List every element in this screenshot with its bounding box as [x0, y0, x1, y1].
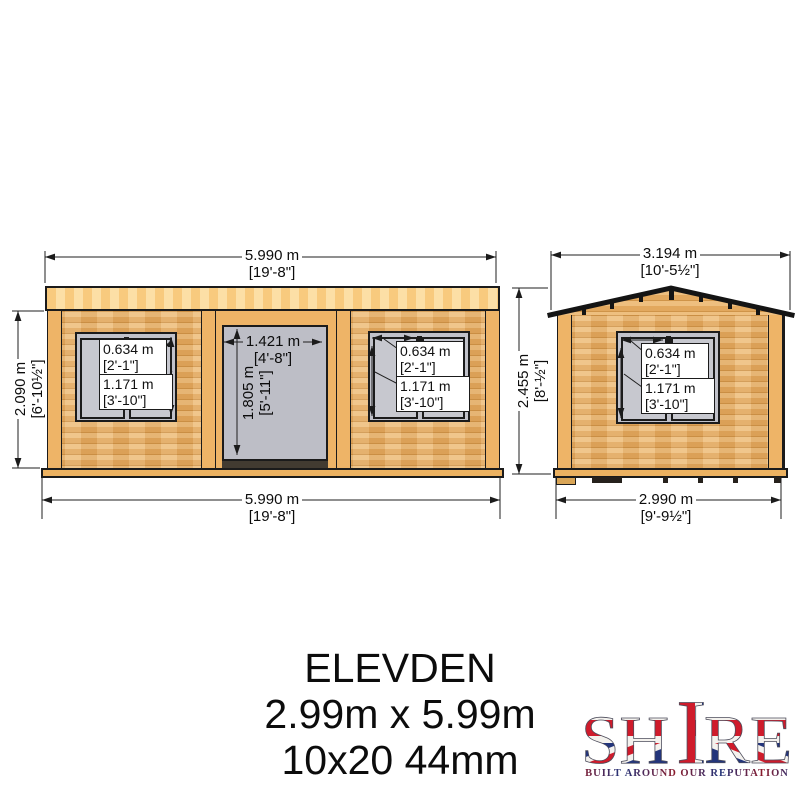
front-left-window-height-label: 1.171 m [3'-10"] — [99, 374, 173, 410]
dim-front-eaves-height: 2.090 m [6'-10½"] — [12, 329, 48, 449]
side-bearer — [592, 477, 622, 483]
dim-value-imperial: [19'-8"] — [222, 264, 322, 281]
dim-value-imperial: [19'-8"] — [222, 508, 322, 525]
dim-value-imperial: [3'-10"] — [645, 396, 711, 412]
side-corner-trim-right — [768, 315, 783, 468]
side-corner-trim-left — [557, 315, 572, 468]
logo-text-re: RE — [704, 702, 792, 770]
dim-value-imperial: [10'-5½"] — [620, 262, 720, 279]
dim-value-imperial: [2'-1"] — [400, 359, 460, 375]
dim-value: 1.171 m — [400, 378, 466, 394]
drawing-page: 5.990 m [19'-8"] 5.990 m [19'-8"] 2.090 … — [0, 0, 800, 800]
dim-value: 5.990 m — [242, 491, 302, 508]
side-foot — [733, 477, 738, 483]
dim-value-imperial: [3'-10"] — [103, 392, 169, 408]
dim-value: 0.634 m — [400, 343, 460, 359]
dim-front-width-bottom: 5.990 m [19'-8"] — [222, 491, 322, 525]
dim-value: 2.455 m — [515, 351, 532, 411]
front-divider-trim-right — [335, 311, 351, 468]
dim-value: 1.171 m — [103, 376, 169, 392]
front-roof-fascia — [45, 286, 500, 311]
dim-value-imperial: [2'-1"] — [103, 357, 163, 373]
logo-text-i: I — [676, 686, 707, 770]
dim-value-imperial: [5'-11"] — [257, 330, 274, 456]
logo-text-sh: SH — [581, 702, 669, 770]
front-right-window-pane-width-label: 0.634 m [2'-1"] — [396, 341, 464, 377]
dim-value: 2.990 m — [636, 491, 696, 508]
dim-value: 1.805 m — [240, 363, 257, 423]
side-floor-base — [553, 468, 788, 478]
side-gable — [554, 289, 788, 316]
dim-value: 1.171 m — [645, 380, 711, 396]
front-left-window-pane-width-label: 0.634 m [2'-1"] — [99, 339, 167, 375]
shire-logo: SH I RE — [580, 686, 795, 770]
dim-value-imperial: [9'-9½"] — [616, 508, 716, 525]
dim-value-imperial: [8'-½"] — [532, 321, 549, 441]
side-foot — [663, 477, 668, 483]
front-corner-trim-right — [485, 311, 500, 468]
dim-value: 3.194 m — [640, 245, 700, 262]
model-name: ELEVDEN — [0, 645, 800, 691]
dim-value: 0.634 m — [103, 341, 163, 357]
dim-door-height: 1.805 m [5'-11"] — [240, 330, 274, 456]
dim-value-imperial: [2'-1"] — [645, 361, 705, 377]
front-floor-base — [41, 468, 504, 478]
side-foot — [774, 477, 781, 483]
dim-front-width-top: 5.990 m [19'-8"] — [222, 247, 322, 281]
brand-tagline: BUILT AROUND OUR REPUTATION — [578, 768, 796, 779]
front-door-threshold — [222, 461, 328, 468]
dim-side-width-top: 3.194 m [10'-5½"] — [620, 245, 720, 279]
dim-side-width-bottom: 2.990 m [9'-9½"] — [616, 491, 716, 525]
dim-value-imperial: [6'-10½"] — [29, 329, 46, 449]
dim-side-ridge-height: 2.455 m [8'-½"] — [515, 321, 551, 441]
side-window-pane-width-label: 0.634 m [2'-1"] — [641, 343, 709, 379]
side-window-height-label: 1.171 m [3'-10"] — [641, 378, 715, 414]
side-bearer — [556, 477, 576, 485]
dim-value-imperial: [3'-10"] — [400, 394, 466, 410]
dim-value: 5.990 m — [242, 247, 302, 264]
front-corner-trim-left — [47, 311, 62, 468]
shire-letters: SH I RE — [581, 686, 792, 770]
front-right-window-height-label: 1.171 m [3'-10"] — [396, 376, 470, 412]
dim-value: 0.634 m — [645, 345, 705, 361]
dim-value: 2.090 m — [12, 359, 29, 419]
side-foot — [698, 477, 703, 483]
